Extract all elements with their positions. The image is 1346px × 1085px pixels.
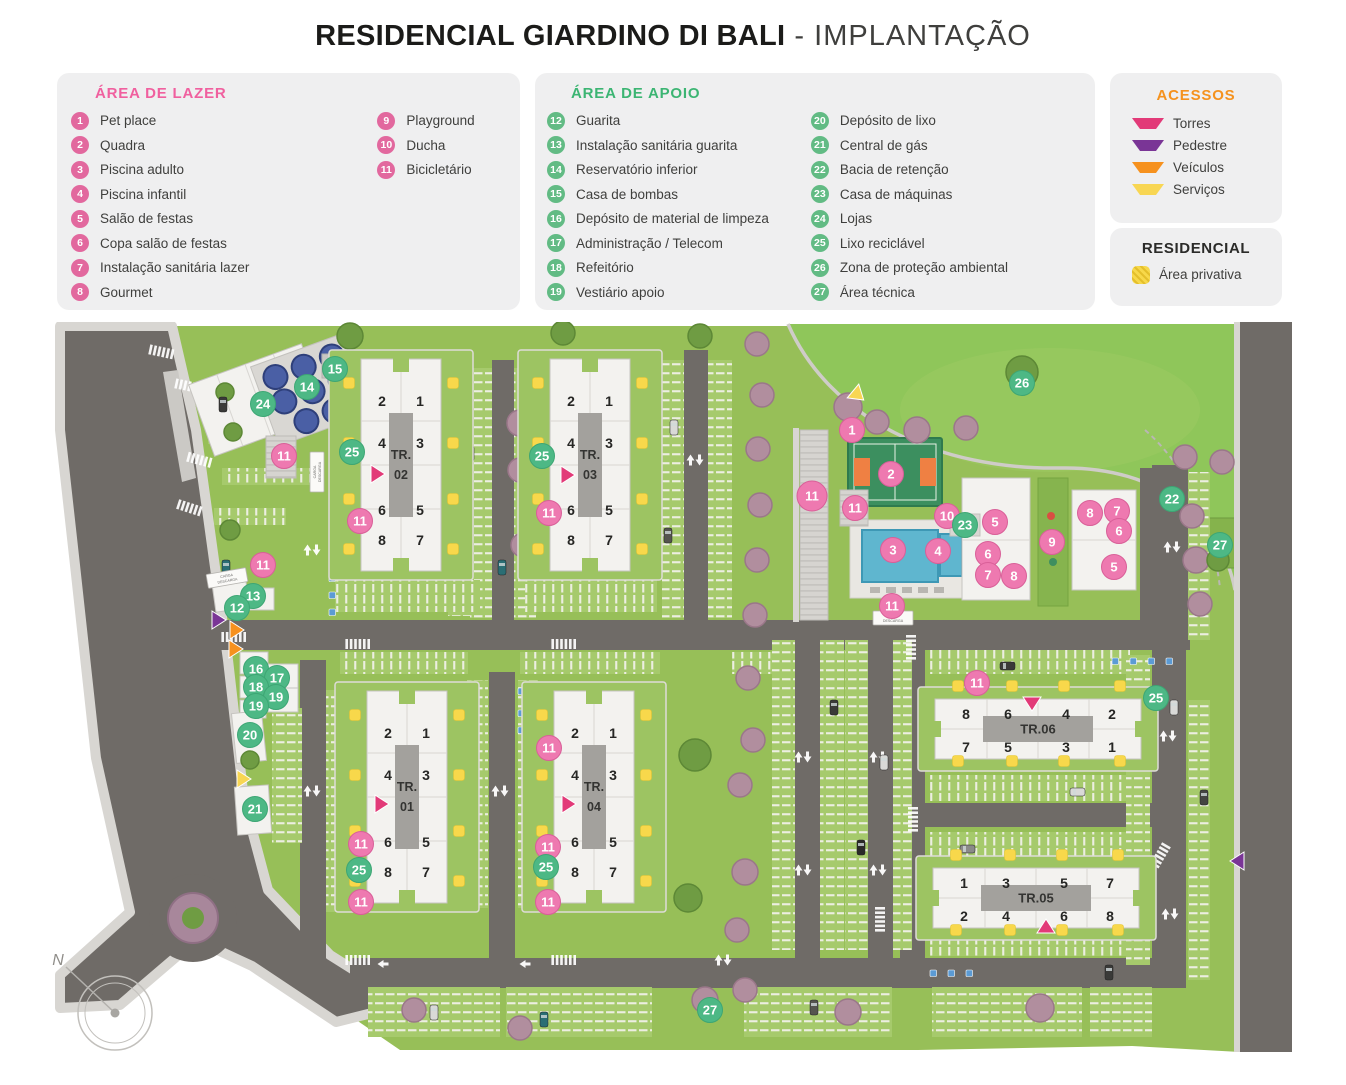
tower-name: TR.06 (1020, 722, 1055, 737)
map-marker-25: 25 (340, 440, 365, 465)
legend-access-label: Torres (1173, 116, 1211, 131)
svg-text:25: 25 (539, 860, 553, 875)
legend-item-15: 15Casa de bombas (547, 186, 769, 204)
svg-text:25: 25 (1149, 691, 1163, 706)
legend-item-label: Casa de bombas (576, 187, 678, 202)
legend-number-badge: 24 (811, 210, 829, 228)
legend-number-badge: 23 (811, 185, 829, 203)
legend-access-label: Veículos (1173, 160, 1224, 175)
private-area-square (454, 770, 465, 781)
legend-item-label: Instalação sanitária lazer (100, 260, 249, 275)
private-area-square (1059, 756, 1070, 767)
unit-label: 6 (571, 834, 579, 850)
svg-text:6: 6 (1115, 524, 1122, 539)
legend-item-label: Refeitório (576, 260, 634, 275)
tower-name: TR. (584, 780, 604, 794)
svg-text:01: 01 (400, 800, 414, 814)
unit-label: 4 (384, 767, 392, 783)
legend-item-7: 7Instalação sanitária lazer (71, 259, 249, 277)
svg-text:11: 11 (256, 558, 270, 573)
legend-number-badge: 21 (811, 136, 829, 154)
svg-text:8: 8 (1010, 569, 1017, 584)
svg-text:DESCARGA: DESCARGA (883, 619, 904, 623)
private-area-square (637, 544, 648, 555)
legend-item-19: 19Vestiário apoio (547, 284, 769, 302)
map-marker-23: 23 (953, 513, 978, 538)
map-marker-25: 25 (347, 858, 372, 883)
legend-residencial-items: Área privativa (1120, 267, 1272, 282)
svg-text:11: 11 (542, 506, 556, 521)
private-area-square (1005, 925, 1016, 936)
legend-item-5: 5Salão de festas (71, 210, 249, 228)
map-marker-3: 3 (881, 538, 906, 563)
legend-acessos: ACESSOS TorresPedestreVeículosServiços (1110, 73, 1282, 223)
access-triangle-icon (1132, 162, 1164, 173)
legend-number-badge: 18 (547, 259, 565, 277)
unit-label: 4 (378, 435, 386, 451)
private-area-square (953, 681, 964, 692)
unit-label: 7 (962, 739, 970, 755)
tower-name: TR.05 (1018, 891, 1053, 906)
legend-acessos-title: ACESSOS (1120, 87, 1272, 104)
tower-name: TR. (391, 448, 411, 462)
svg-text:11: 11 (354, 895, 368, 910)
private-area-square (1113, 925, 1124, 936)
svg-text:27: 27 (1213, 538, 1227, 553)
legend-number-badge: 26 (811, 259, 829, 277)
map-marker-25: 25 (534, 855, 559, 880)
private-area-square (344, 544, 355, 555)
legend-item-20: 20Depósito de lixo (811, 112, 1008, 130)
private-area-square (637, 378, 648, 389)
legend-lazer-title: ÁREA DE LAZER (95, 85, 508, 102)
unit-label: 8 (384, 864, 392, 880)
unit-label: 4 (567, 435, 575, 451)
unit-label: 7 (422, 864, 430, 880)
legend-item-label: Instalação sanitária guarita (576, 138, 737, 153)
legend-item-label: Quadra (100, 138, 145, 153)
map-marker-11: 11 (536, 890, 561, 915)
unit-label: 2 (567, 393, 575, 409)
legend-number-badge: 19 (547, 283, 565, 301)
legend-item-13: 13Instalação sanitária guarita (547, 137, 769, 155)
svg-text:25: 25 (535, 449, 549, 464)
svg-text:7: 7 (984, 568, 991, 583)
legend-item-label: Playground (406, 113, 474, 128)
unit-label: 1 (960, 875, 968, 891)
map-marker-14: 14 (295, 375, 320, 400)
svg-text:3: 3 (889, 543, 896, 558)
legend-item-label: Piscina infantil (100, 187, 186, 202)
unit-label: 6 (1004, 706, 1012, 722)
svg-text:5: 5 (1110, 560, 1117, 575)
map-marker-27: 27 (1208, 533, 1233, 558)
svg-text:21: 21 (248, 802, 262, 817)
legend-item-16: 16Depósito de material de limpeza (547, 210, 769, 228)
unit-label: 5 (605, 502, 613, 518)
legend-access-label: Serviços (1173, 182, 1225, 197)
private-area-square (344, 378, 355, 389)
legend-item-label: Administração / Telecom (576, 236, 723, 251)
unit-label: 2 (384, 725, 392, 741)
svg-text:11: 11 (354, 837, 368, 852)
legend-number-badge: 6 (71, 234, 89, 252)
private-area-square (637, 494, 648, 505)
unit-label: 3 (1002, 875, 1010, 891)
map-marker-2: 2 (879, 462, 904, 487)
unit-label: 3 (609, 767, 617, 783)
unit-label: 1 (416, 393, 424, 409)
map-marker-27: 27 (698, 998, 723, 1023)
legend-residencial: RESIDENCIAL Área privativa (1110, 228, 1282, 306)
map-marker-24: 24 (251, 392, 276, 417)
map-marker-11: 11 (272, 444, 297, 469)
tower-02: 21436587TR.02 (329, 350, 473, 580)
legend-item-9: 9Playground (377, 112, 474, 130)
page: { "title": {"main": "RESIDENCIAL GIARDIN… (0, 0, 1346, 1080)
svg-text:1: 1 (848, 423, 855, 438)
map-marker-11: 11 (348, 509, 373, 534)
legend-item-23: 23Casa de máquinas (811, 186, 1008, 204)
legend-item-label: Bicicletário (406, 162, 471, 177)
private-area-square (448, 494, 459, 505)
legend-number-badge: 22 (811, 161, 829, 179)
svg-text:26: 26 (1015, 376, 1029, 391)
unit-label: 5 (416, 502, 424, 518)
map-marker-25: 25 (530, 444, 555, 469)
private-area-square (1005, 850, 1016, 861)
svg-text:CARGA: CARGA (313, 465, 317, 478)
private-area-square (637, 438, 648, 449)
access-triangle-icon (1132, 140, 1164, 151)
compass-north-label: N (52, 952, 64, 969)
svg-text:11: 11 (541, 895, 555, 910)
legend-number-badge: 25 (811, 234, 829, 252)
legend-item-4: 4Piscina infantil (71, 186, 249, 204)
site-plan-svg: 21436587TR.0221436587TR.0321436587TR.012… (0, 322, 1346, 1080)
legend-item-11: 11Bicicletário (377, 161, 474, 179)
private-area-square (344, 494, 355, 505)
map-marker-5: 5 (1102, 555, 1127, 580)
page-title: RESIDENCIAL GIARDINO DI BALI- IMPLANTAÇÃ… (0, 20, 1346, 53)
map-marker-11: 11 (843, 496, 868, 521)
unit-label: 7 (605, 532, 613, 548)
unit-label: 8 (962, 706, 970, 722)
private-area-square (1059, 681, 1070, 692)
svg-text:9: 9 (1048, 535, 1055, 550)
page-title-main: RESIDENCIAL GIARDINO DI BALI (315, 20, 785, 52)
legend-residencial-label: Área privativa (1159, 267, 1242, 282)
legend-item-8: 8Gourmet (71, 284, 249, 302)
private-area-square (537, 770, 548, 781)
map-marker-26: 26 (1010, 371, 1035, 396)
legend-item-label: Ducha (406, 138, 445, 153)
map-marker-11: 11 (797, 481, 827, 511)
unit-label: 6 (1060, 908, 1068, 924)
unit-label: 7 (416, 532, 424, 548)
legend-item-label: Central de gás (840, 138, 928, 153)
legend-item-6: 6Copa salão de festas (71, 235, 249, 253)
private-area-square (951, 925, 962, 936)
svg-text:11: 11 (277, 449, 291, 464)
svg-text:24: 24 (256, 397, 271, 412)
unit-label: 3 (605, 435, 613, 451)
svg-text:27: 27 (703, 1003, 717, 1018)
unit-label: 7 (609, 864, 617, 880)
legend-item-label: Copa salão de festas (100, 236, 227, 251)
unit-label: 5 (1004, 739, 1012, 755)
private-area-square (951, 850, 962, 861)
legend-item-label: Salão de festas (100, 211, 193, 226)
unit-label: 1 (609, 725, 617, 741)
legend-number-badge: 10 (377, 136, 395, 154)
private-area-square (1115, 681, 1126, 692)
svg-text:25: 25 (345, 445, 359, 460)
svg-text:4: 4 (934, 544, 942, 559)
access-triangle-icon (1132, 184, 1164, 195)
unit-label: 8 (567, 532, 575, 548)
legend-number-badge: 9 (377, 112, 395, 130)
unit-label: 5 (1060, 875, 1068, 891)
svg-text:10: 10 (940, 509, 954, 524)
private-area-square (350, 770, 361, 781)
legend-apoio-col2: 20Depósito de lixo21Central de gás22Baci… (811, 112, 1008, 301)
access-triangle-icon (1132, 118, 1164, 129)
svg-text:19: 19 (269, 690, 283, 705)
legend-residencial-title: RESIDENCIAL (1120, 240, 1272, 257)
unit-label: 4 (1062, 706, 1070, 722)
private-area-square (454, 826, 465, 837)
legend-item-label: Área técnica (840, 285, 915, 300)
map-marker-11: 11 (251, 553, 276, 578)
page-title-suffix: - IMPLANTAÇÃO (794, 20, 1030, 52)
unit-label: 2 (378, 393, 386, 409)
legend-item-label: Guarita (576, 113, 620, 128)
legend-item-12: 12Guarita (547, 112, 769, 130)
legend-item-label: Depósito de lixo (840, 113, 936, 128)
svg-text:11: 11 (542, 741, 556, 756)
legend-access-veiculos: Veículos (1132, 160, 1272, 175)
legend-number-badge: 15 (547, 185, 565, 203)
unit-label: 2 (571, 725, 579, 741)
map-marker-20: 20 (238, 723, 263, 748)
legend-item-label: Pet place (100, 113, 156, 128)
svg-text:8: 8 (1086, 506, 1093, 521)
map-marker-4: 4 (926, 539, 951, 564)
legend-item-label: Depósito de material de limpeza (576, 211, 769, 226)
map-marker-19: 19 (244, 694, 269, 719)
map-marker-25: 25 (1144, 686, 1169, 711)
legend-number-badge: 14 (547, 161, 565, 179)
legend-number-badge: 4 (71, 185, 89, 203)
legend-item-1: 1Pet place (71, 112, 249, 130)
legend-number-badge: 20 (811, 112, 829, 130)
legend-item-label: Casa de máquinas (840, 187, 953, 202)
svg-text:20: 20 (243, 728, 257, 743)
tower-06: 86427531TR.06 (918, 681, 1158, 772)
legend-item-label: Lixo reciclável (840, 236, 925, 251)
map-marker-9: 9 (1040, 530, 1065, 555)
private-area-square (448, 438, 459, 449)
unit-label: 3 (416, 435, 424, 451)
svg-text:11: 11 (541, 840, 555, 855)
svg-text:17: 17 (270, 671, 284, 686)
legend-item-17: 17Administração / Telecom (547, 235, 769, 253)
legend-item-label: Piscina adulto (100, 162, 184, 177)
map-marker-12: 12 (225, 596, 250, 621)
unit-label: 3 (422, 767, 430, 783)
svg-text:7: 7 (1113, 504, 1120, 519)
unit-label: 8 (571, 864, 579, 880)
legend-item-label: Bacia de retenção (840, 162, 949, 177)
legend-item-label: Reservatório inferior (576, 162, 698, 177)
unit-label: 6 (384, 834, 392, 850)
legend-apoio-title: ÁREA DE APOIO (571, 85, 1083, 102)
map-marker-22: 22 (1160, 487, 1185, 512)
legend-number-badge: 3 (71, 161, 89, 179)
private-area-square (641, 876, 652, 887)
legend-acessos-items: TorresPedestreVeículosServiços (1120, 116, 1272, 197)
svg-text:02: 02 (394, 468, 408, 482)
legend-item-2: 2Quadra (71, 137, 249, 155)
unit-label: 1 (422, 725, 430, 741)
legend-apoio-col1: 12Guarita13Instalação sanitária guarita1… (547, 112, 769, 301)
unit-label: 7 (1106, 875, 1114, 891)
legend-number-badge: 1 (71, 112, 89, 130)
legend-number-badge: 17 (547, 234, 565, 252)
svg-text:5: 5 (991, 515, 998, 530)
map-marker-11: 11 (880, 594, 905, 619)
unit-label: 2 (960, 908, 968, 924)
map-marker-1: 1 (840, 418, 865, 443)
svg-text:22: 22 (1165, 492, 1179, 507)
unit-label: 1 (1108, 739, 1116, 755)
map-marker-6: 6 (1107, 519, 1132, 544)
private-area-square (1057, 925, 1068, 936)
legend-item-label: Vestiário apoio (576, 285, 665, 300)
unit-label: 4 (571, 767, 579, 783)
legend-item-label: Gourmet (100, 285, 153, 300)
legend-item-18: 18Refeitório (547, 259, 769, 277)
private-area-square (537, 710, 548, 721)
legend-area-de-lazer: ÁREA DE LAZER 1Pet place2Quadra3Piscina … (57, 73, 520, 310)
tower-name: TR. (397, 780, 417, 794)
private-area-square (1113, 850, 1124, 861)
private-area-square (533, 378, 544, 389)
legend-item-22: 22Bacia de retenção (811, 161, 1008, 179)
svg-text:15: 15 (328, 362, 342, 377)
unit-label: 8 (378, 532, 386, 548)
unit-label: 6 (378, 502, 386, 518)
legend-item-26: 26Zona de proteção ambiental (811, 259, 1008, 277)
legend-number-badge: 8 (71, 283, 89, 301)
unit-label: 5 (422, 834, 430, 850)
svg-text:14: 14 (300, 380, 315, 395)
private-area-square (953, 756, 964, 767)
svg-text:DESCARGA: DESCARGA (318, 461, 322, 482)
svg-text:11: 11 (353, 514, 367, 529)
legend-item-10: 10Ducha (377, 137, 474, 155)
svg-text:03: 03 (583, 468, 597, 482)
svg-text:11: 11 (848, 501, 862, 516)
svg-text:6: 6 (984, 547, 991, 562)
legend-item-3: 3Piscina adulto (71, 161, 249, 179)
legend-residencial-item: Área privativa (1132, 267, 1272, 282)
private-area-square (641, 710, 652, 721)
private-area-square (641, 770, 652, 781)
map-marker-8: 8 (1078, 501, 1103, 526)
private-area-swatch-icon (1132, 266, 1150, 284)
legend-number-badge: 13 (547, 136, 565, 154)
map-marker-15: 15 (323, 357, 348, 382)
svg-text:25: 25 (352, 863, 366, 878)
svg-text:23: 23 (958, 518, 972, 533)
private-area-square (641, 826, 652, 837)
unit-label: 6 (567, 502, 575, 518)
private-area-square (448, 378, 459, 389)
legend-number-badge: 7 (71, 259, 89, 277)
legend-number-badge: 5 (71, 210, 89, 228)
svg-text:11: 11 (805, 489, 819, 504)
unit-label: 1 (605, 393, 613, 409)
tower-name: TR. (580, 448, 600, 462)
legend-lazer-col2: 9Playground10Ducha11Bicicletário (377, 112, 474, 301)
unit-label: 4 (1002, 908, 1010, 924)
legend-item-label: Zona de proteção ambiental (840, 260, 1008, 275)
svg-text:11: 11 (970, 676, 984, 691)
legend-item-21: 21Central de gás (811, 137, 1008, 155)
svg-text:11: 11 (885, 599, 899, 614)
legend-item-14: 14Reservatório inferior (547, 161, 769, 179)
map-marker-11: 11 (537, 501, 562, 526)
svg-text:19: 19 (249, 699, 263, 714)
map-marker-7: 7 (976, 563, 1001, 588)
private-area-square (1007, 681, 1018, 692)
legend-access-pedestre: Pedestre (1132, 138, 1272, 153)
map-marker-11: 11 (349, 832, 374, 857)
unit-label: 5 (609, 834, 617, 850)
legend-lazer-col1: 1Pet place2Quadra3Piscina adulto4Piscina… (71, 112, 249, 301)
legend-access-label: Pedestre (1173, 138, 1227, 153)
map-marker-8: 8 (1002, 564, 1027, 589)
map-marker-5: 5 (983, 510, 1008, 535)
legend-item-label: Lojas (840, 211, 872, 226)
legend-item-27: 27Área técnica (811, 284, 1008, 302)
svg-text:18: 18 (249, 680, 263, 695)
carga-descarga-sign: CARGADESCARGA (310, 452, 324, 492)
private-area-square (454, 710, 465, 721)
map-marker-21: 21 (243, 797, 268, 822)
svg-text:12: 12 (230, 601, 244, 616)
unit-label: 3 (1062, 739, 1070, 755)
legend-number-badge: 27 (811, 283, 829, 301)
private-area-square (454, 876, 465, 887)
legend-area-de-apoio: ÁREA DE APOIO 12Guarita13Instalação sani… (535, 73, 1095, 310)
site-plan-map: 21436587TR.0221436587TR.0321436587TR.012… (0, 322, 1346, 1080)
private-area-square (448, 544, 459, 555)
legend-number-badge: 2 (71, 136, 89, 154)
map-marker-11: 11 (537, 736, 562, 761)
svg-text:04: 04 (587, 800, 601, 814)
unit-label: 8 (1106, 908, 1114, 924)
legend-number-badge: 12 (547, 112, 565, 130)
private-area-square (350, 710, 361, 721)
legend-number-badge: 16 (547, 210, 565, 228)
private-area-square (533, 544, 544, 555)
legend-access-torres: Torres (1132, 116, 1272, 131)
private-area-square (1057, 850, 1068, 861)
unit-label: 2 (1108, 706, 1116, 722)
